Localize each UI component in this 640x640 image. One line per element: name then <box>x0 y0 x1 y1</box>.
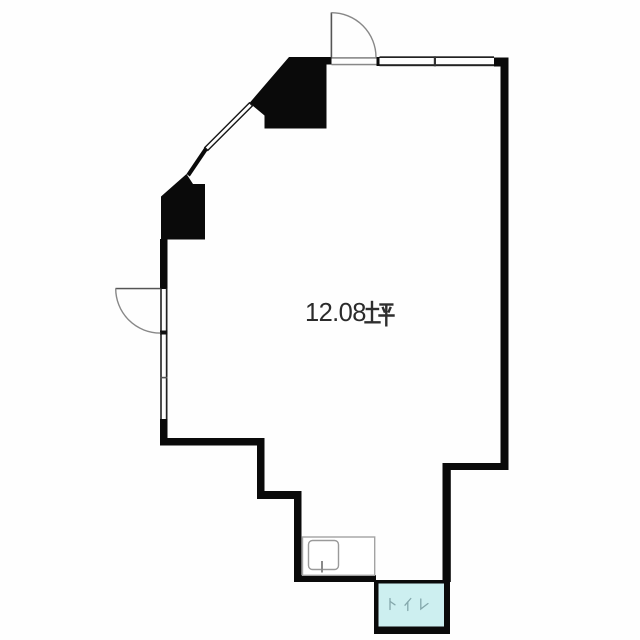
svg-text:12.08: 12.08 <box>305 299 366 327</box>
